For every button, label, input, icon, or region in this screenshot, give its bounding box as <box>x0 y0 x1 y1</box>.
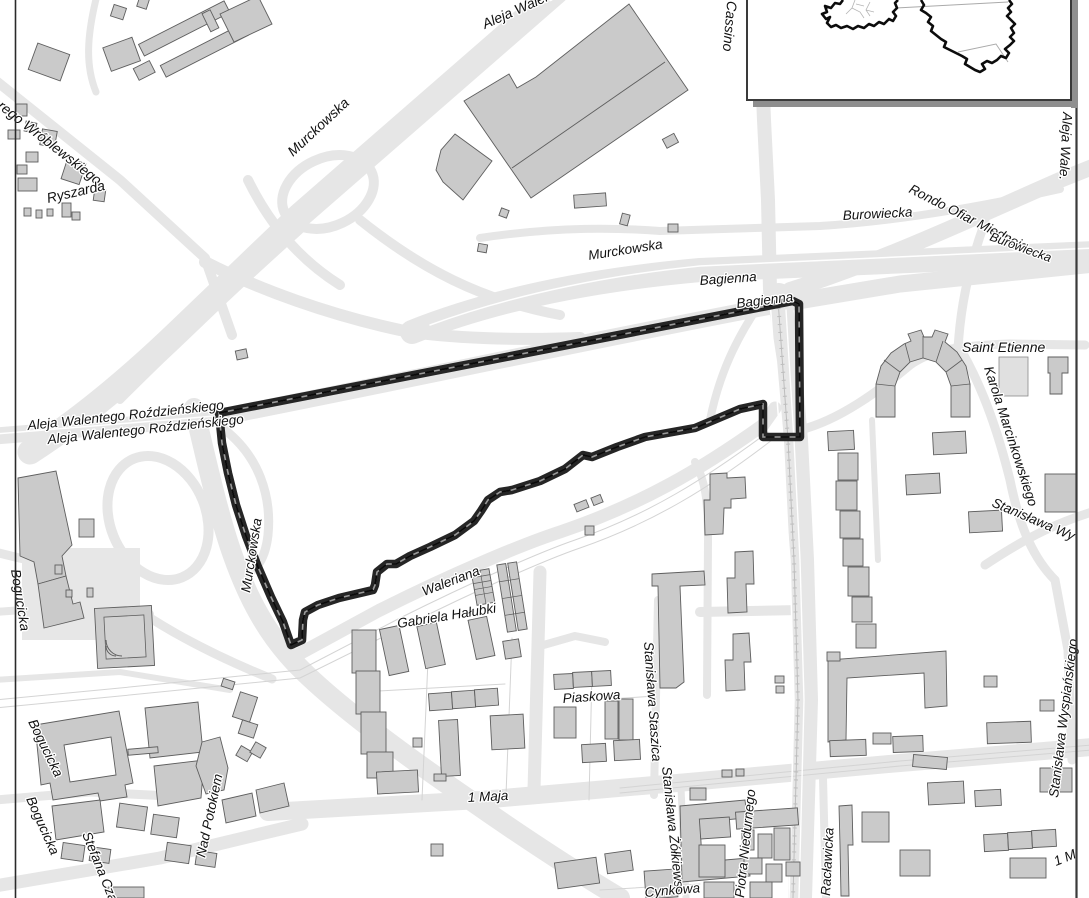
svg-text:1 Maja: 1 Maja <box>467 788 509 805</box>
svg-text:Saint Etienne: Saint Etienne <box>962 339 1045 355</box>
